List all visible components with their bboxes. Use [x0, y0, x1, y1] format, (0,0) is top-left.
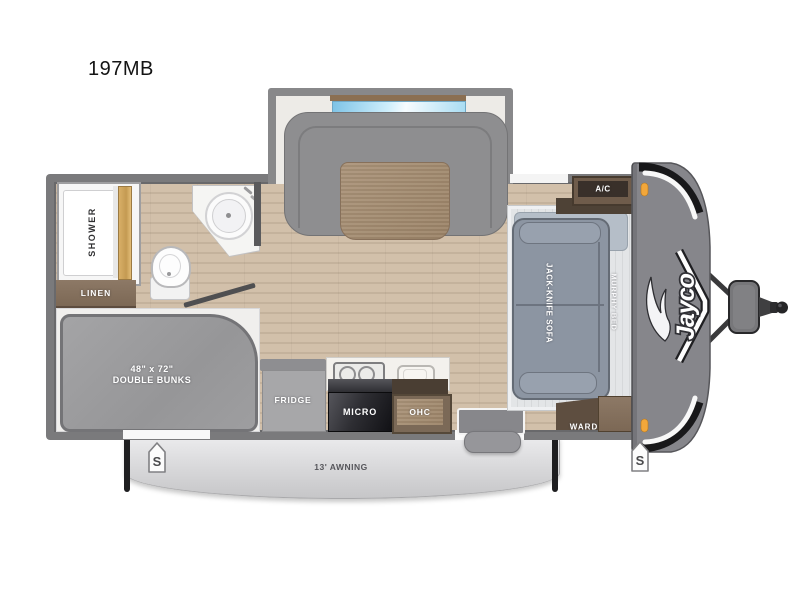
- speaker-badge-letter: S: [636, 453, 645, 468]
- window-bottom-left: [123, 430, 210, 439]
- page-title: 197MB: [88, 58, 154, 81]
- ward-label: WARD: [570, 423, 598, 432]
- cooktop-front: [328, 379, 392, 393]
- ohc-label: OHC: [409, 407, 430, 417]
- murphy-bed-label: MURPHY BED: [610, 273, 619, 330]
- awning-end-cap-right: [552, 437, 558, 492]
- toilet-drain: [167, 272, 171, 276]
- speaker-badge-right: S: [630, 441, 650, 473]
- front-cap: Jayco: [625, 155, 800, 460]
- ac-label: A/C: [595, 185, 610, 194]
- bathroom-sink-drain: [226, 213, 231, 218]
- bunks-size-label: 48" x 72": [113, 364, 192, 375]
- hitch-coupler: [759, 297, 788, 317]
- bunks-name-label: DOUBLE BUNKS: [113, 375, 192, 386]
- window-top-right: [510, 174, 568, 183]
- entry-step-lower: [464, 431, 521, 453]
- fridge-label: FRIDGE: [275, 395, 312, 405]
- awning-end-cap-left: [124, 437, 130, 492]
- bunks-label: 48" x 72" DOUBLE BUNKS: [113, 364, 192, 386]
- sofa-armrest-top: [519, 222, 601, 244]
- overhead-cabinet-top: [392, 379, 448, 395]
- speaker-badge-letter: S: [153, 454, 162, 469]
- awning-label: 13' AWNING: [314, 462, 367, 472]
- linen-label: LINEN: [81, 288, 112, 298]
- speaker-badge-left: S: [147, 442, 167, 474]
- shower-label: SHOWER: [87, 207, 97, 257]
- marker-light-top: [641, 183, 648, 196]
- marker-light-bottom: [641, 419, 648, 432]
- bathroom-partition-wall: [254, 182, 261, 246]
- sofa-seat-divider: [516, 304, 604, 306]
- sofa-armrest-bottom: [519, 372, 597, 394]
- dinette-table: [340, 162, 450, 240]
- shower-door: [118, 186, 132, 280]
- jayco-logo: Jayco: [672, 273, 700, 340]
- sofa-back-line: [598, 242, 600, 372]
- floorplan: 197MB 13' AWNING SHOWER LINEN 48" x 72" …: [0, 0, 800, 600]
- microwave-label: MICRO: [343, 407, 377, 417]
- sofa-label: JACK-KNIFE SOFA: [545, 263, 554, 343]
